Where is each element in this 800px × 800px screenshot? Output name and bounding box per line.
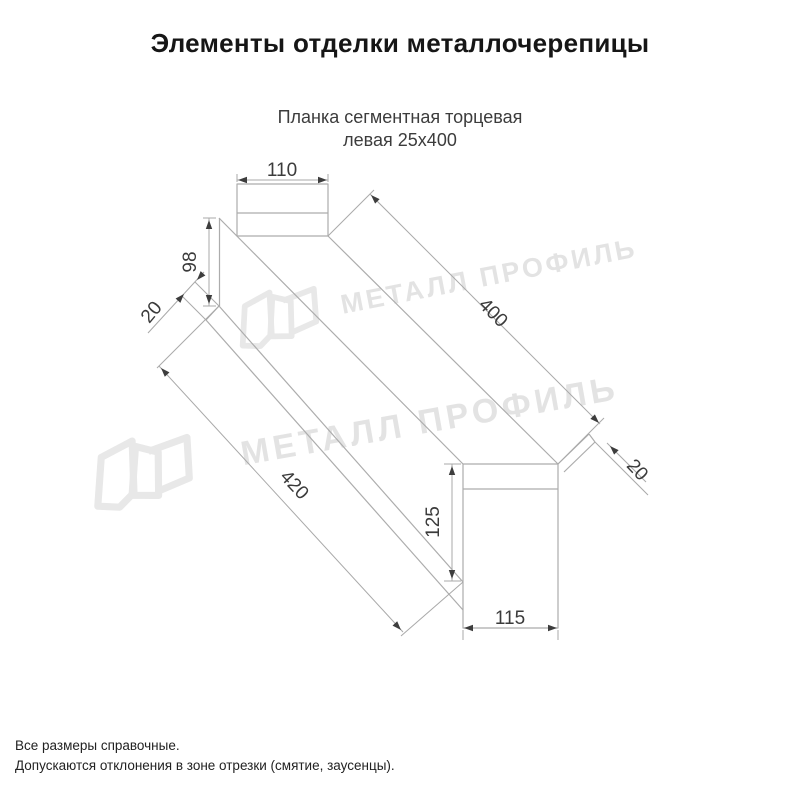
dim-label-left-height: 98 bbox=[180, 251, 201, 272]
dim-label-left-fold: 20 bbox=[137, 298, 167, 328]
dimension-lines bbox=[148, 174, 648, 640]
technical-drawing: 110 98 20 400 20 420 125 115 bbox=[0, 0, 800, 800]
dim-label-end-height: 125 bbox=[423, 506, 444, 538]
dim-label-top-length: 400 bbox=[474, 294, 511, 331]
dimension-arrows bbox=[159, 177, 619, 632]
dim-label-right-fold: 20 bbox=[622, 455, 652, 485]
dim-label-end-width: 115 bbox=[495, 608, 525, 629]
part-outline bbox=[206, 184, 595, 628]
dim-label-tab-width: 110 bbox=[267, 160, 297, 181]
